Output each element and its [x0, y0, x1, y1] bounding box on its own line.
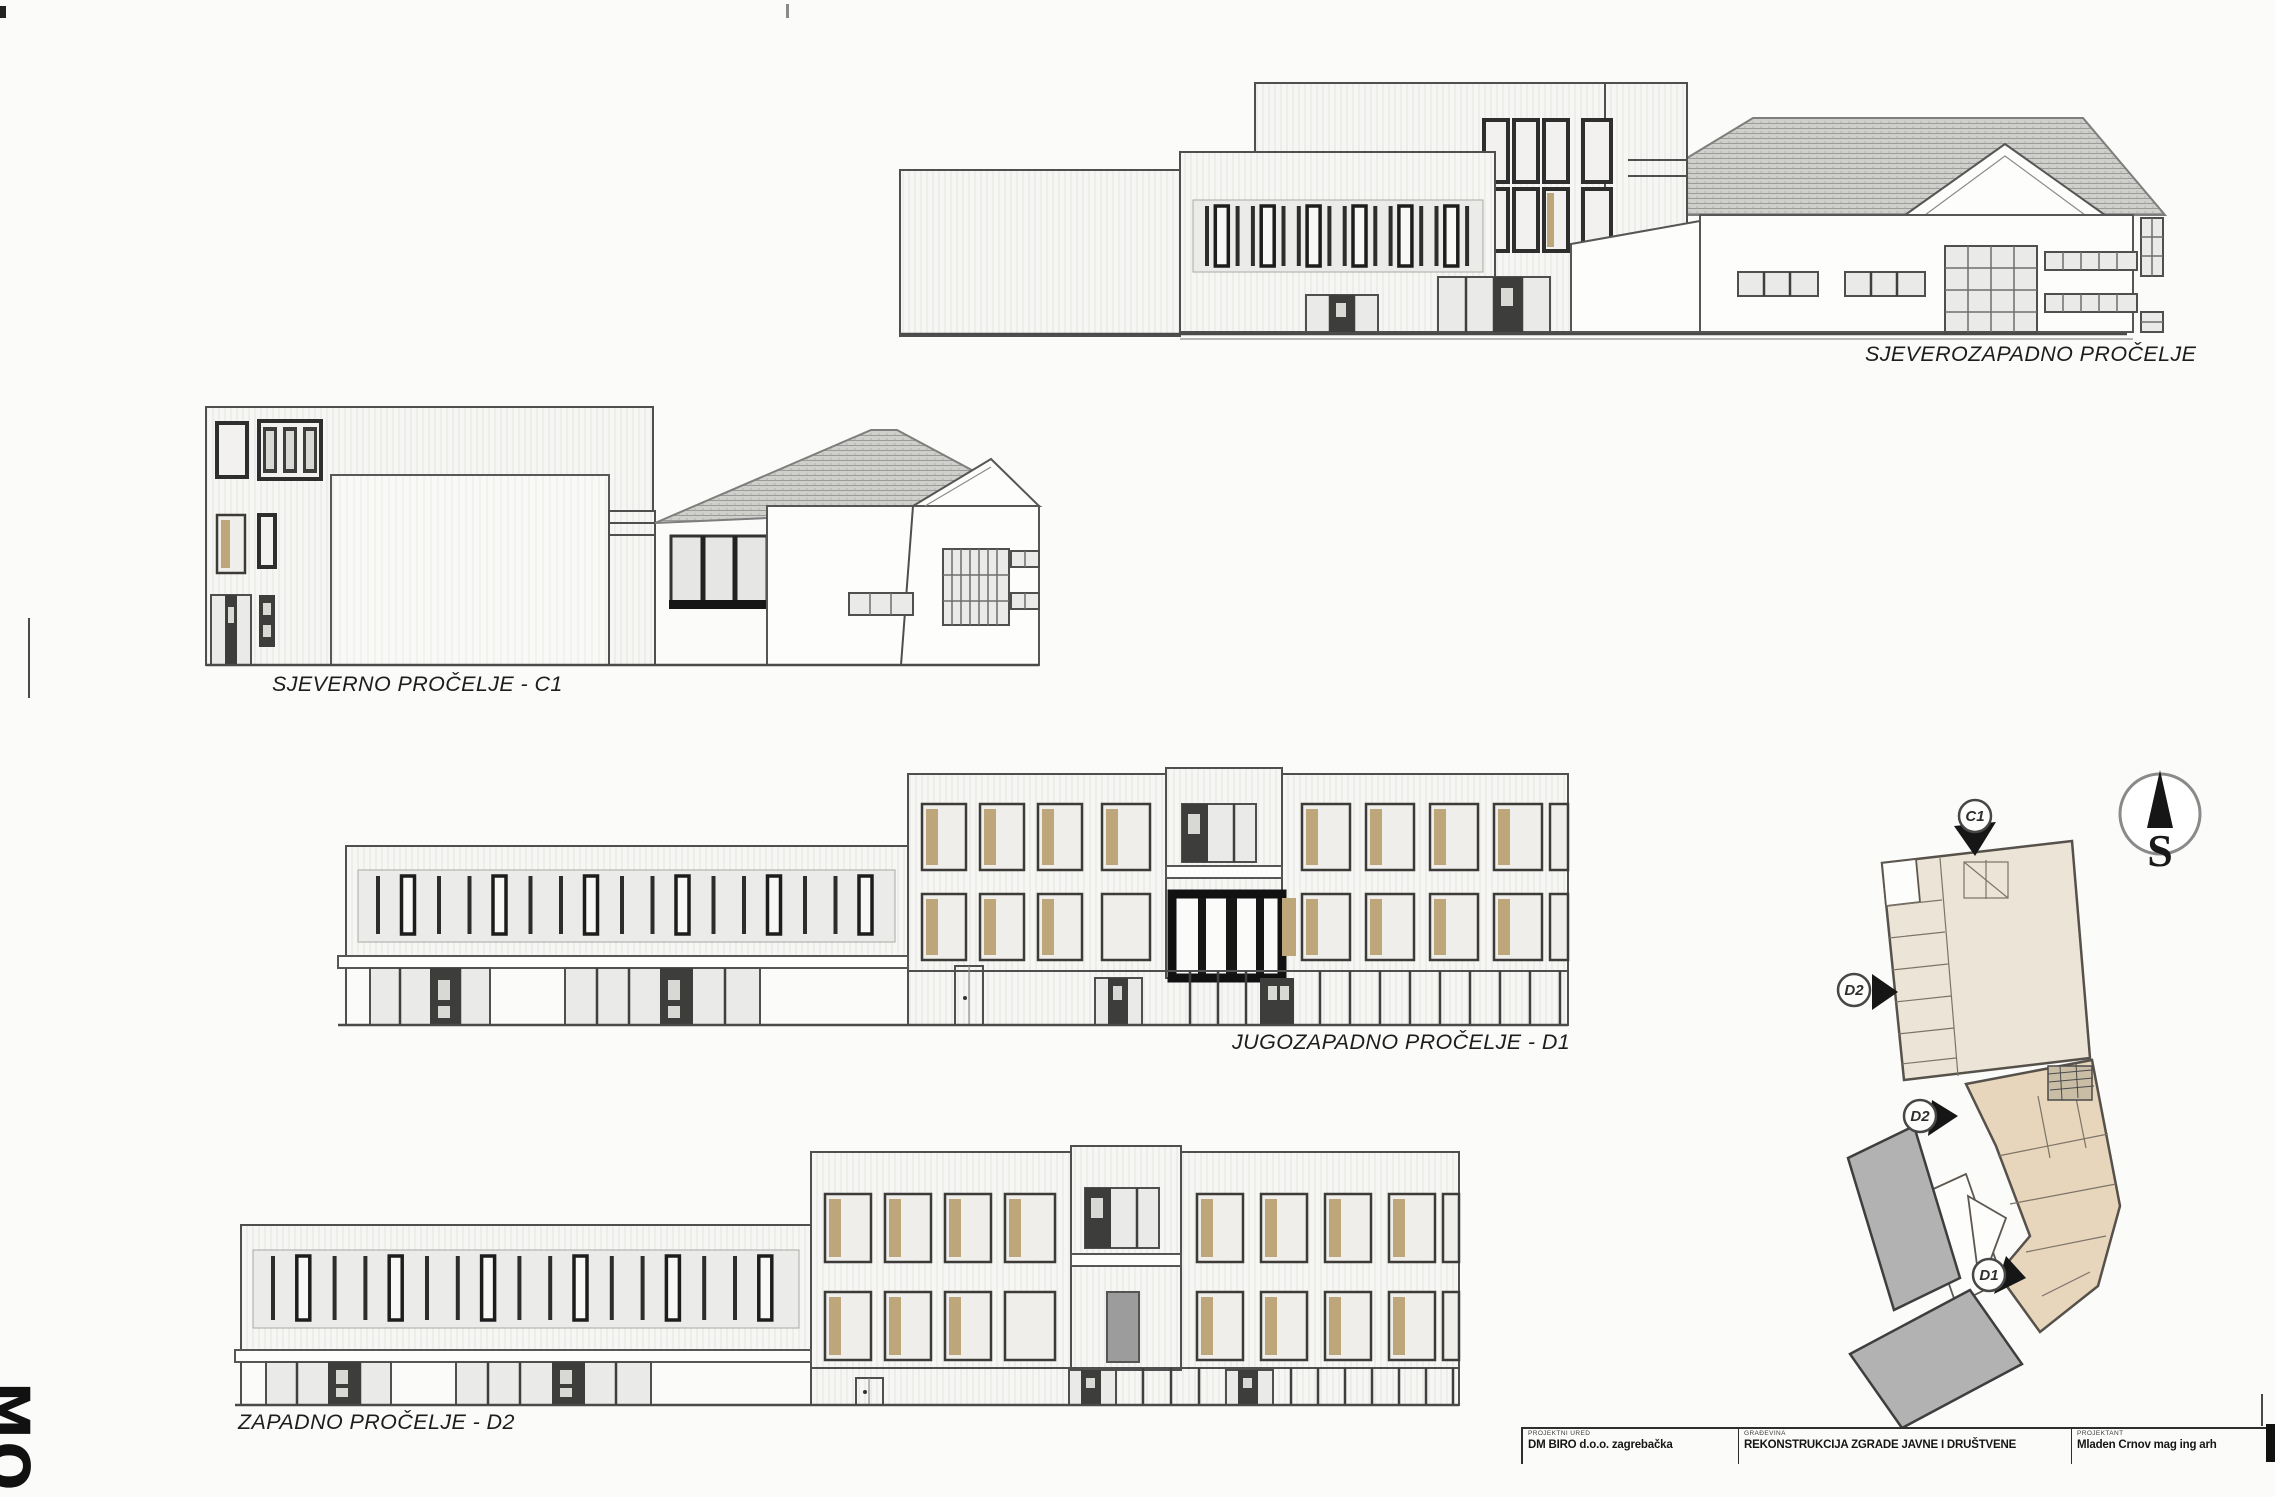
label-elevation-southwest: JUGOZAPADNO PROČELJE - D1: [1232, 1030, 1570, 1055]
fold-mark-top: [786, 4, 789, 18]
plan-buildings: [1848, 841, 2120, 1428]
plan-stair-hatch: [2048, 1064, 2094, 1100]
plan-notch: [1882, 859, 1920, 906]
label-elevation-northwest: SJEVEROZAPADNO PROČELJE: [1865, 342, 2196, 367]
label-elevation-north: SJEVERNO PROČELJE - C1: [272, 672, 563, 697]
label-elevation-west: ZAPADNO PROČELJE - D2: [238, 1410, 515, 1435]
centre-tower: [1166, 768, 1296, 978]
elevation-northwest-drawing: [893, 76, 2173, 346]
title-cell-building: GRAĐEVINA REKONSTRUKCIJA ZGRADE JAVNE I …: [1739, 1429, 2072, 1464]
corner-stamp-text: MO: [0, 1377, 37, 1497]
wing-window-band-1: [1738, 272, 1818, 296]
blank-front-block: [331, 475, 609, 665]
tall-block-windows-row1: [1484, 120, 1611, 182]
black-feature-window: [1172, 894, 1282, 978]
marker-d2-a: D2: [1844, 982, 1864, 999]
fold-mark-left: [28, 618, 30, 698]
plan-gray-building-2: [1850, 1290, 2022, 1428]
windows-right-row2: [1302, 894, 1568, 960]
title-cell-designer-header: PROJEKTANT: [2077, 1430, 2264, 1437]
title-cell-office: PROJEKTNI URED DM BIRO d.o.o. zagrebačka: [1523, 1429, 1739, 1464]
elevation-west-drawing: [231, 1130, 1466, 1410]
compass-letter: S: [2147, 825, 2173, 876]
wing-grid-window: [1945, 246, 2037, 332]
sheet-edge-bar: [2266, 1424, 2275, 1462]
corner-mark-top: [0, 6, 6, 18]
edge-windows: [2141, 218, 2163, 332]
wing-ground-glazing: [241, 1362, 651, 1405]
marker-d1: D1: [1979, 1267, 1998, 1284]
elevation-southwest-drawing: [330, 766, 1575, 1032]
north-compass: S: [2120, 770, 2200, 876]
entry-glazing-2: [1438, 277, 1550, 332]
title-cell-building-value: REKONSTRUKCIJA ZGRADE JAVNE I DRUŠTVENE: [1744, 1439, 2066, 1451]
title-cell-office-value: DM BIRO d.o.o. zagrebačka: [1528, 1439, 1733, 1451]
windows-right-row2: [1197, 1292, 1459, 1360]
elevation-north-drawing: [203, 403, 1043, 678]
title-cell-office-header: PROJEKTNI URED: [1528, 1430, 1733, 1437]
gray-door-panel: [1107, 1292, 1139, 1362]
marker-c1: C1: [1965, 808, 1984, 825]
wing-window-band-2: [1845, 272, 1925, 296]
canopy-slab: [235, 1350, 811, 1362]
entry-glazing-1: [1306, 295, 1378, 332]
title-cell-designer-value: Mladen Crnov mag ing arh: [2077, 1439, 2264, 1451]
glass-curtain: [669, 536, 769, 609]
wing-ground-glazing: [346, 968, 760, 1025]
title-cell-designer: PROJEKTANT Mladen Crnov mag ing arh: [2072, 1429, 2269, 1464]
trellis-window: [943, 549, 1009, 625]
drawing-sheet: { "sheet": { "background": "#fbfbf9" }, …: [0, 0, 2275, 1462]
site-plan: S C1: [1798, 766, 2275, 1462]
left-block: [900, 170, 1180, 336]
marker-d2-b: D2: [1910, 1108, 1930, 1125]
windows-right-row1: [1302, 804, 1568, 870]
centre-tower: [1071, 1146, 1181, 1370]
windows-right-row1: [1197, 1194, 1459, 1262]
title-cell-building-header: GRAĐEVINA: [1744, 1430, 2066, 1437]
title-block: PROJEKTNI URED DM BIRO d.o.o. zagrebačka…: [1521, 1427, 2269, 1464]
sheet-edge-line: [2261, 1394, 2263, 1426]
canopy-slab: [338, 956, 908, 968]
